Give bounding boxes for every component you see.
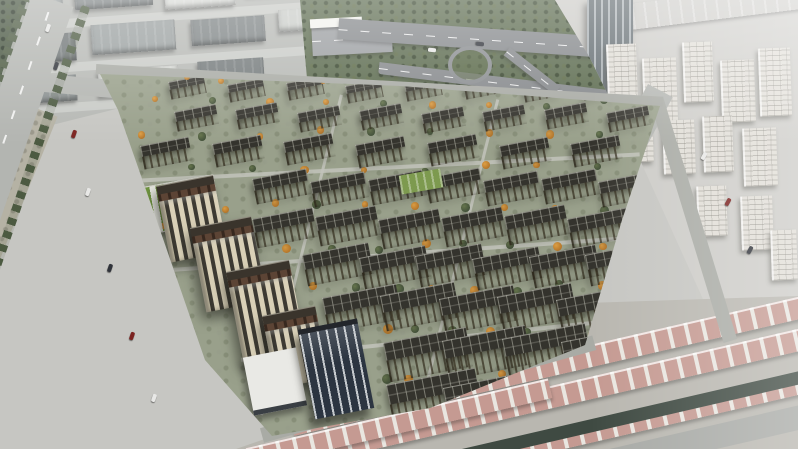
- apartment-building: [315, 205, 381, 246]
- office-building: [298, 319, 374, 420]
- car: [107, 264, 113, 273]
- autumn-tree: [501, 204, 508, 211]
- apartment-building: [504, 204, 570, 245]
- loop-ramp: [448, 46, 492, 84]
- apartment-building: [606, 105, 651, 133]
- apartment-building: [541, 169, 600, 205]
- autumn-tree: [482, 161, 491, 170]
- car: [85, 188, 91, 197]
- autumn-tree: [128, 163, 137, 172]
- warehouse-shed: [90, 19, 176, 55]
- apartment-building: [227, 78, 266, 102]
- white-residential-tower: [720, 59, 756, 122]
- apartment-building: [567, 207, 633, 248]
- car: [71, 130, 77, 139]
- autumn-tree: [222, 206, 229, 213]
- apartment-building: [174, 104, 219, 132]
- green-tree: [188, 164, 195, 171]
- autumn-tree: [282, 244, 291, 253]
- autumn-tree: [486, 102, 492, 108]
- autumn-tree: [411, 202, 419, 210]
- apartment-building: [482, 104, 527, 132]
- car: [129, 332, 135, 341]
- car: [428, 48, 436, 53]
- apartment-building: [359, 103, 404, 131]
- apartment-building: [544, 102, 589, 130]
- apartment-building: [570, 135, 622, 168]
- apartment-building: [355, 136, 407, 169]
- car: [151, 394, 157, 403]
- apartment-building: [235, 102, 280, 130]
- kindergarten-accent: [138, 225, 149, 233]
- white-residential-tower: [742, 127, 778, 186]
- apartment-building: [297, 105, 342, 133]
- white-residential-tower: [740, 195, 774, 250]
- white-residential-tower: [770, 230, 798, 281]
- apartment-building: [252, 207, 318, 248]
- white-residential-tower: [702, 115, 734, 172]
- apartment-building: [483, 171, 542, 207]
- apartment-building: [140, 137, 192, 170]
- green-tree: [461, 203, 470, 212]
- white-residential-tower: [682, 41, 714, 102]
- autumn-tree: [429, 101, 437, 109]
- office-podium: [243, 347, 307, 415]
- apartment-building: [421, 106, 466, 134]
- warehouse-shed: [190, 15, 266, 46]
- apartment-building: [212, 135, 264, 168]
- autumn-tree: [599, 243, 606, 250]
- apartment-building: [283, 133, 335, 166]
- apartment-building: [378, 208, 444, 249]
- green-tree: [198, 132, 206, 140]
- autumn-tree: [138, 131, 145, 138]
- aerial-rendering: [0, 0, 798, 449]
- apartment-building: [499, 137, 551, 170]
- car: [476, 42, 484, 47]
- apartment-building: [441, 206, 507, 247]
- autumn-tree: [323, 99, 329, 105]
- white-residential-tower: [758, 47, 792, 116]
- green-tree: [249, 165, 257, 173]
- green-tree: [596, 131, 602, 137]
- autumn-tree: [152, 96, 158, 102]
